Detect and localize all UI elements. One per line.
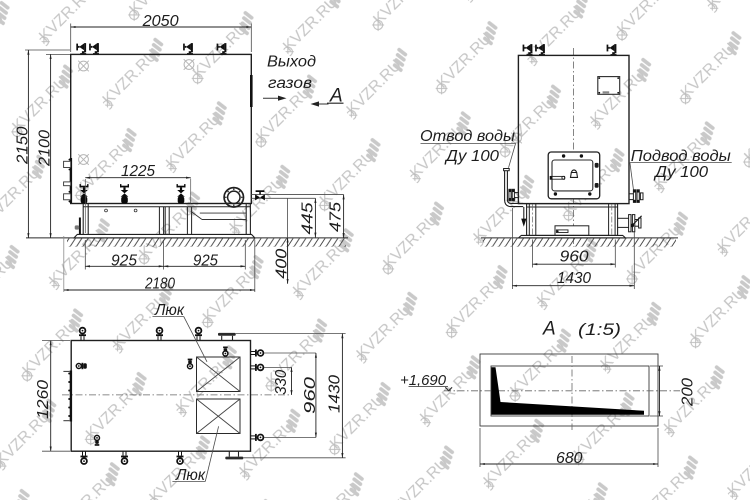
- svg-text:400: 400: [274, 248, 291, 278]
- svg-text:1260: 1260: [35, 380, 52, 419]
- svg-text:Отвод воды: Отвод воды: [420, 128, 516, 145]
- svg-text:A: A: [329, 86, 343, 107]
- svg-text:1430: 1430: [327, 375, 344, 413]
- svg-text:2180: 2180: [144, 276, 175, 293]
- svg-text:475: 475: [327, 202, 344, 232]
- svg-text:Ду 100: Ду 100: [653, 164, 709, 181]
- svg-text:1225: 1225: [121, 163, 155, 180]
- svg-text:680: 680: [556, 450, 583, 467]
- svg-text:445: 445: [300, 202, 317, 234]
- svg-text:Ду 100: Ду 100: [444, 148, 500, 165]
- svg-text:Выход: Выход: [267, 54, 316, 71]
- svg-text:960: 960: [302, 377, 319, 414]
- svg-text:200: 200: [680, 378, 697, 407]
- svg-text:1430: 1430: [557, 270, 591, 287]
- svg-text:330: 330: [273, 369, 290, 394]
- svg-text:(1:5): (1:5): [578, 321, 621, 339]
- svg-text:925: 925: [111, 252, 137, 269]
- svg-text:2050: 2050: [142, 13, 179, 30]
- svg-text:2150: 2150: [14, 126, 31, 165]
- svg-text:газов: газов: [268, 75, 312, 92]
- svg-text:960: 960: [560, 249, 589, 266]
- svg-text:A: A: [542, 319, 556, 340]
- svg-text:925: 925: [193, 252, 218, 269]
- svg-text:2100: 2100: [37, 130, 54, 167]
